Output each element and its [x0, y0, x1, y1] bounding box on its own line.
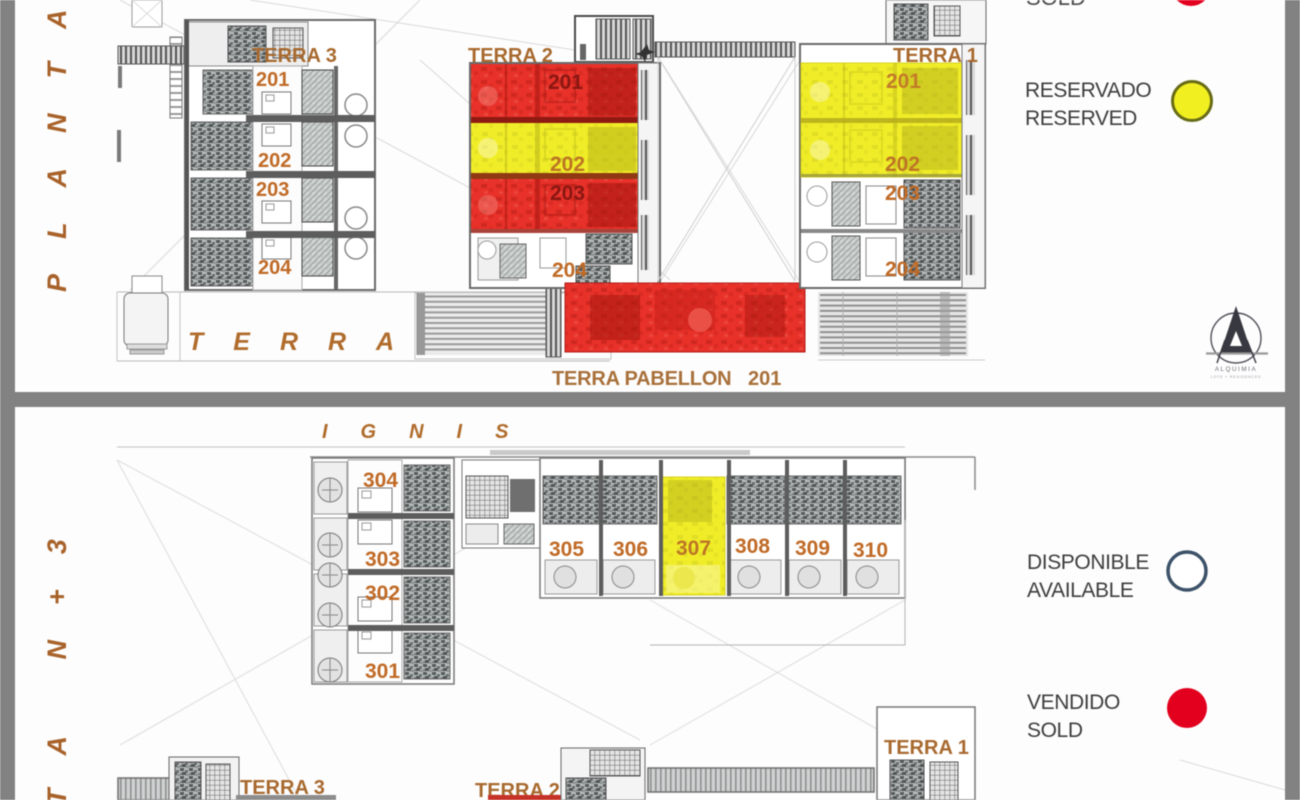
- svg-text:TERRA 1: TERRA 1: [884, 737, 969, 759]
- svg-text:AVAILABLE: AVAILABLE: [1027, 579, 1134, 602]
- svg-text:TERRA 3: TERRA 3: [252, 45, 337, 67]
- svg-text:TERRA: TERRA: [188, 328, 424, 356]
- svg-text:201: 201: [748, 368, 781, 390]
- svg-text:204: 204: [258, 257, 292, 279]
- svg-text:203: 203: [550, 182, 585, 205]
- svg-text:TERRA 1: TERRA 1: [893, 45, 978, 67]
- svg-text:303: 303: [365, 548, 400, 571]
- svg-text:302: 302: [365, 582, 400, 605]
- svg-text:202: 202: [550, 153, 585, 176]
- svg-text:TERRA 2: TERRA 2: [468, 45, 553, 67]
- svg-text:TA N+3: TA N+3: [42, 504, 72, 800]
- svg-text:VENDIDO: VENDIDO: [1027, 691, 1120, 714]
- svg-text:DISPONIBLE: DISPONIBLE: [1027, 551, 1149, 574]
- svg-text:LOTE + RESIDENCES: LOTE + RESIDENCES: [1211, 375, 1261, 379]
- svg-text:307: 307: [676, 537, 711, 560]
- svg-text:SOLD: SOLD: [1026, 0, 1086, 10]
- svg-text:305: 305: [549, 538, 584, 561]
- svg-text:SOLD: SOLD: [1027, 719, 1083, 742]
- svg-text:308: 308: [735, 535, 770, 558]
- svg-text:204: 204: [552, 259, 587, 282]
- svg-text:203: 203: [256, 179, 289, 201]
- svg-text:201: 201: [886, 70, 921, 93]
- svg-text:201: 201: [548, 71, 583, 94]
- svg-text:201: 201: [256, 69, 289, 91]
- svg-text:204: 204: [885, 258, 920, 281]
- svg-text:PLANTA: PLANTA: [42, 0, 72, 292]
- svg-text:310: 310: [853, 539, 888, 562]
- svg-text:TERRA PABELLON: TERRA PABELLON: [552, 368, 731, 390]
- svg-text:309: 309: [795, 537, 830, 560]
- svg-text:IGNIS: IGNIS: [322, 421, 541, 443]
- svg-text:304: 304: [363, 469, 398, 492]
- svg-text:RESERVED: RESERVED: [1025, 107, 1137, 130]
- svg-text:ALQUIMIA: ALQUIMIA: [1215, 366, 1257, 373]
- svg-text:301: 301: [365, 660, 400, 683]
- svg-text:203: 203: [885, 182, 920, 205]
- svg-text:202: 202: [258, 150, 291, 172]
- svg-text:306: 306: [613, 538, 648, 561]
- svg-text:202: 202: [885, 153, 920, 176]
- svg-text:RESERVADO: RESERVADO: [1025, 79, 1151, 102]
